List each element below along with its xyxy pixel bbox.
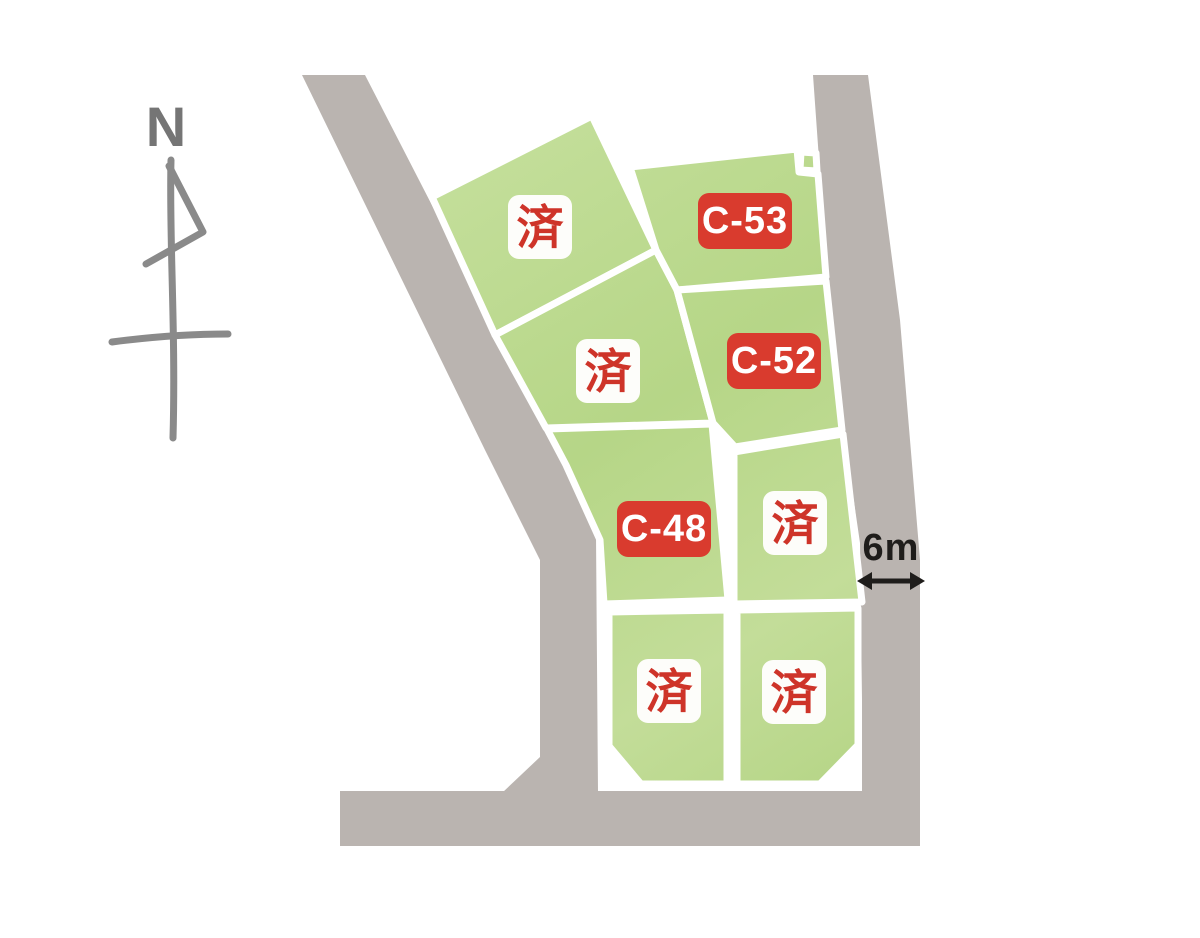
plot-bottom-right-sold-badge: 済 xyxy=(762,660,826,724)
plot-c52-badge: C-52 xyxy=(727,333,821,389)
plot-northwest-lower-sold-badge: 済 xyxy=(576,339,640,403)
plot-c48-badge: C-48 xyxy=(617,501,711,557)
plot-northwest-upper-sold-badge: 済 xyxy=(508,195,572,259)
road-width-label: 6m xyxy=(851,528,931,568)
compass-pennant xyxy=(146,166,203,264)
plot-middle-right-sold-badge: 済 xyxy=(763,491,827,555)
compass-shaft xyxy=(171,160,174,438)
north-label: N xyxy=(126,96,206,156)
north-compass xyxy=(112,160,228,438)
plot-c53-corner-piece xyxy=(800,152,817,171)
plot-c53-badge: C-53 xyxy=(698,193,792,249)
lot-map: N 済 C-53 済 C-52 C-48 済 済 済 6m xyxy=(0,0,1200,938)
plot-bottom-left-sold-badge: 済 xyxy=(637,659,701,723)
road-bottom xyxy=(340,791,920,846)
